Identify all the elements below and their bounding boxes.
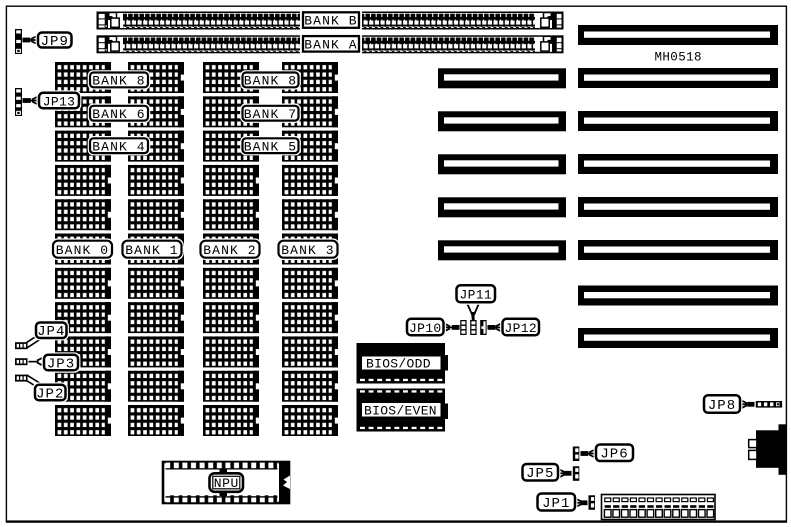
svg-text:BANK 3: BANK 3 (281, 243, 334, 258)
svg-text:JP9: JP9 (41, 34, 69, 50)
svg-text:JP8: JP8 (708, 398, 736, 414)
svg-text:BANK 0: BANK 0 (56, 243, 109, 258)
svg-text:JP4: JP4 (37, 324, 65, 340)
svg-text:BIOS/EVEN: BIOS/EVEN (364, 403, 437, 418)
svg-text:JP10: JP10 (409, 321, 441, 336)
svg-text:MH0518: MH0518 (655, 51, 702, 65)
svg-text:BANK 6: BANK 6 (92, 107, 145, 122)
svg-text:BANK 5: BANK 5 (244, 139, 297, 154)
svg-text:BANK B: BANK B (304, 14, 357, 29)
svg-text:BANK 8: BANK 8 (92, 74, 145, 89)
svg-text:JP2: JP2 (36, 386, 64, 402)
svg-text:BANK 1: BANK 1 (125, 243, 178, 258)
svg-text:BANK 2: BANK 2 (203, 243, 256, 258)
svg-text:BANK A: BANK A (304, 37, 357, 52)
svg-text:JP12: JP12 (505, 321, 537, 336)
svg-text:BANK 7: BANK 7 (244, 107, 297, 122)
svg-text:BANK 8: BANK 8 (244, 74, 297, 89)
svg-text:JP5: JP5 (526, 466, 554, 482)
svg-text:JP3: JP3 (47, 356, 75, 372)
svg-text:JP1: JP1 (542, 496, 570, 512)
svg-text:JP11: JP11 (460, 288, 492, 303)
svg-text:BIOS/ODD: BIOS/ODD (366, 357, 431, 372)
svg-text:BANK 4: BANK 4 (92, 139, 145, 154)
svg-text:JP6: JP6 (600, 447, 628, 463)
svg-text:NPU: NPU (214, 476, 239, 491)
svg-text:JP13: JP13 (43, 94, 75, 109)
